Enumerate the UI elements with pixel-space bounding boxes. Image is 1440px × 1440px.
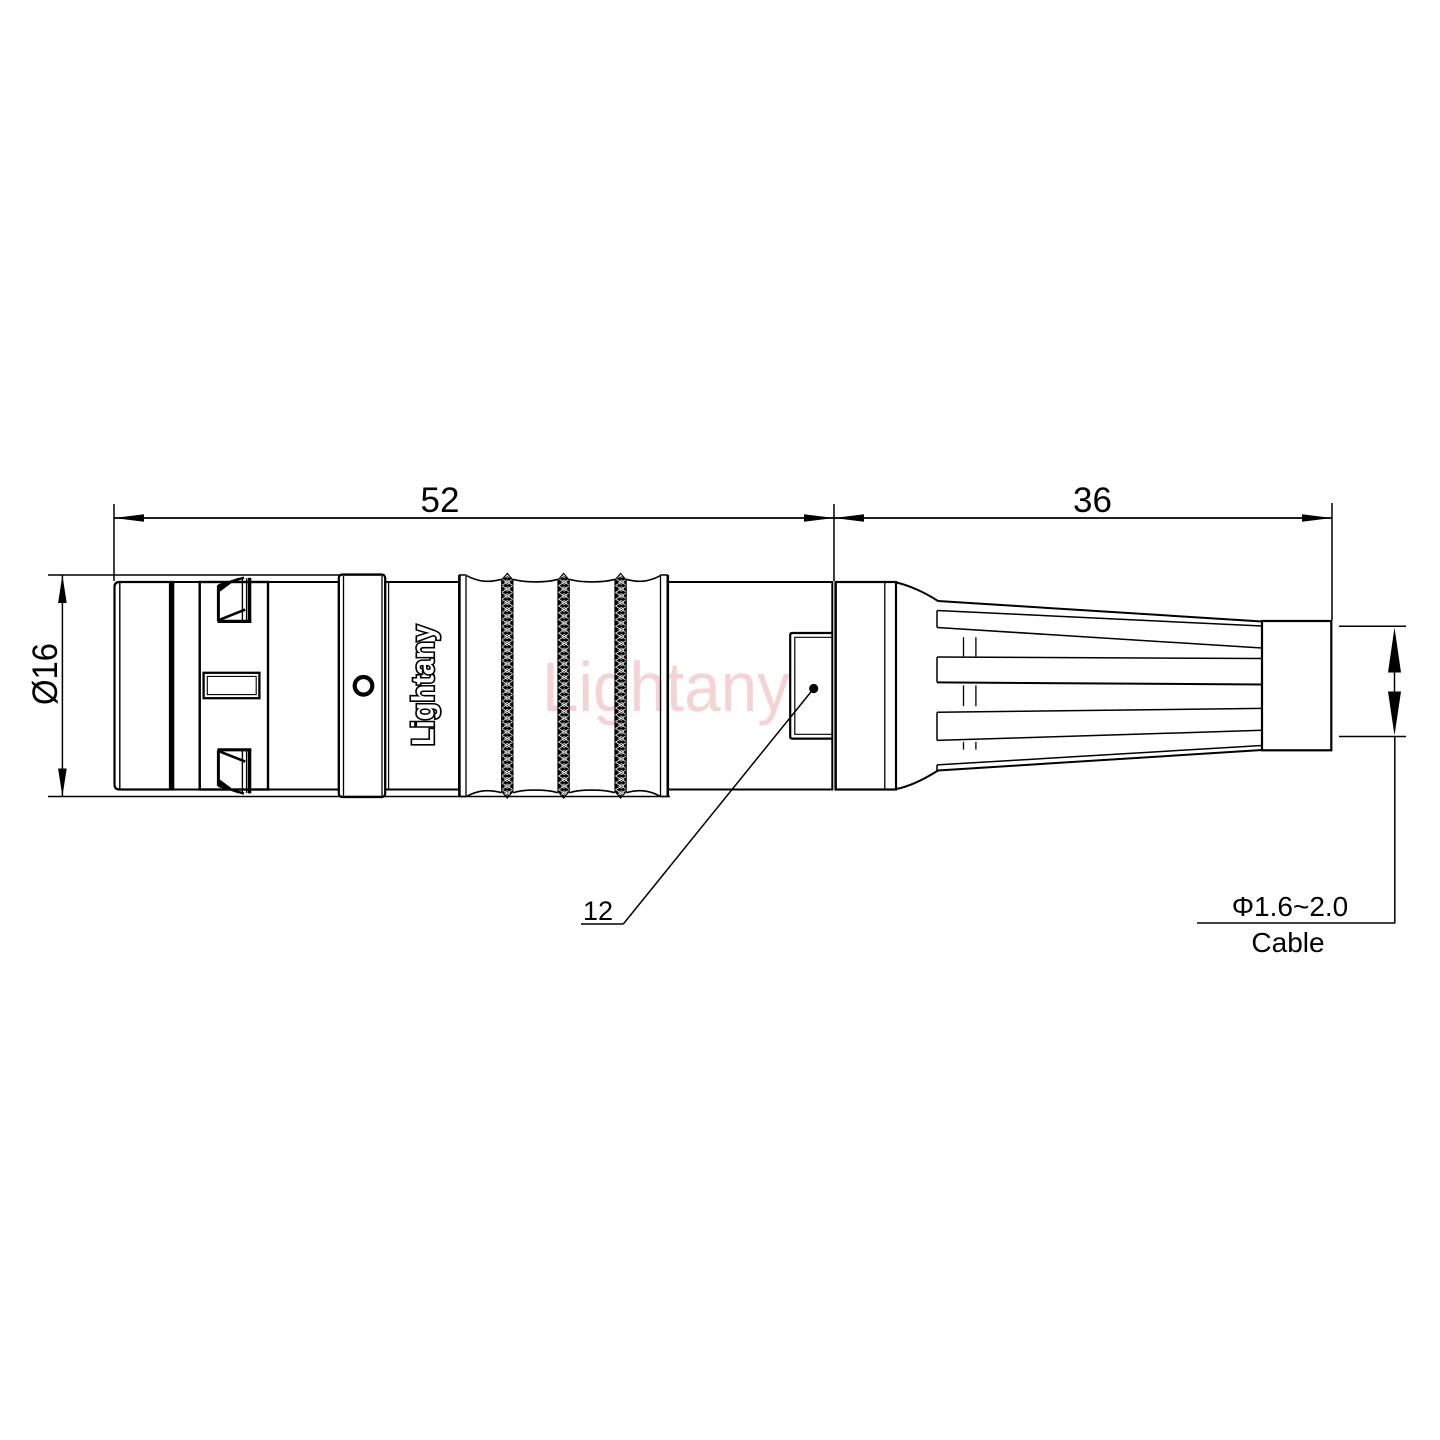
svg-text:Cable: Cable xyxy=(1251,927,1324,958)
svg-text:Ø16: Ø16 xyxy=(26,643,65,705)
svg-text:52: 52 xyxy=(421,481,460,520)
svg-text:Φ1.6~2.0: Φ1.6~2.0 xyxy=(1232,891,1349,922)
svg-text:12: 12 xyxy=(583,896,613,926)
svg-text:36: 36 xyxy=(1073,481,1112,520)
